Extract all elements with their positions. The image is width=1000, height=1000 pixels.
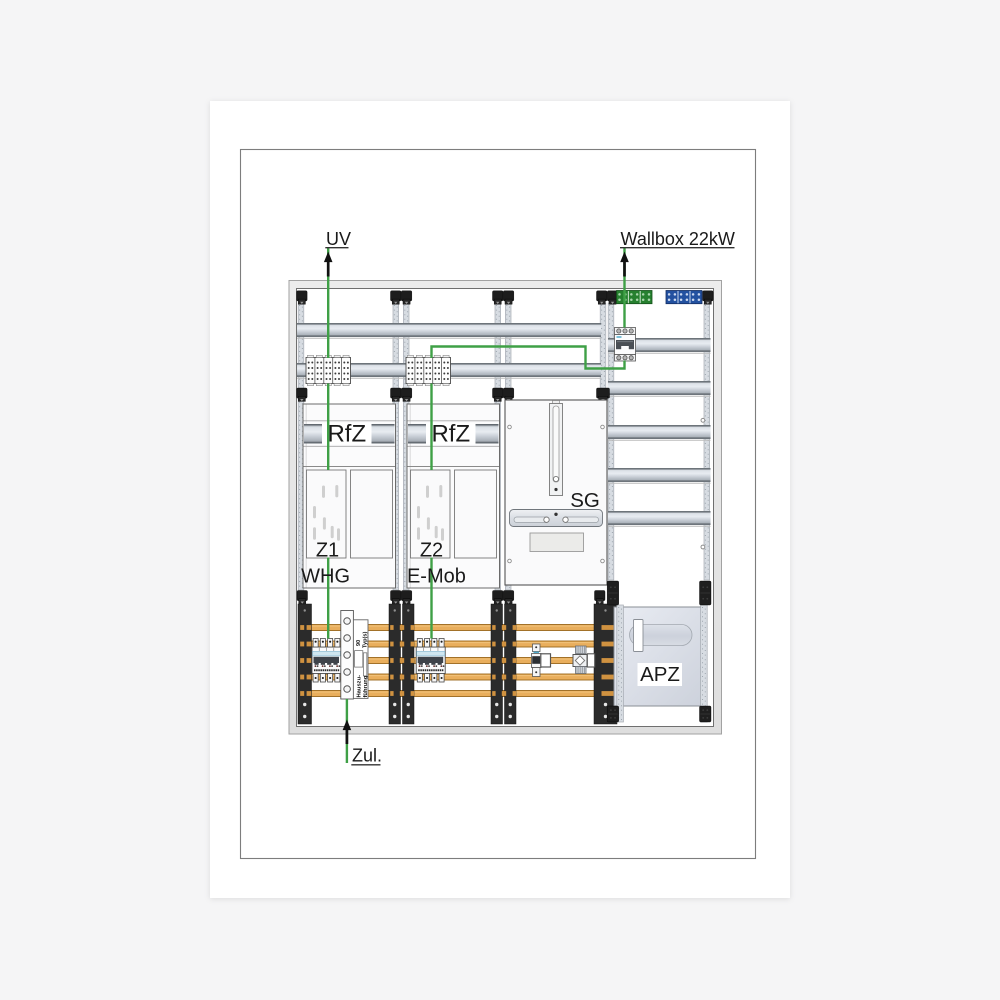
svg-text:RfZ: RfZ — [431, 421, 470, 448]
svg-text:Zul.: Zul. — [352, 746, 382, 766]
svg-text:WHG: WHG — [301, 566, 350, 588]
svg-text:APZ: APZ — [640, 663, 680, 686]
svg-text:Wallbox 22kW: Wallbox 22kW — [621, 229, 735, 249]
svg-text:führung: führung — [363, 675, 369, 697]
svg-text:Typ(s): Typ(s) — [362, 631, 368, 648]
svg-text:E-Mob: E-Mob — [407, 566, 466, 588]
svg-text:90: 90 — [356, 640, 362, 646]
svg-text:UV: UV — [326, 229, 351, 249]
svg-text:RfZ: RfZ — [327, 421, 366, 448]
svg-text:SG: SG — [570, 489, 600, 512]
svg-text:Hauszu-: Hauszu- — [357, 675, 363, 698]
